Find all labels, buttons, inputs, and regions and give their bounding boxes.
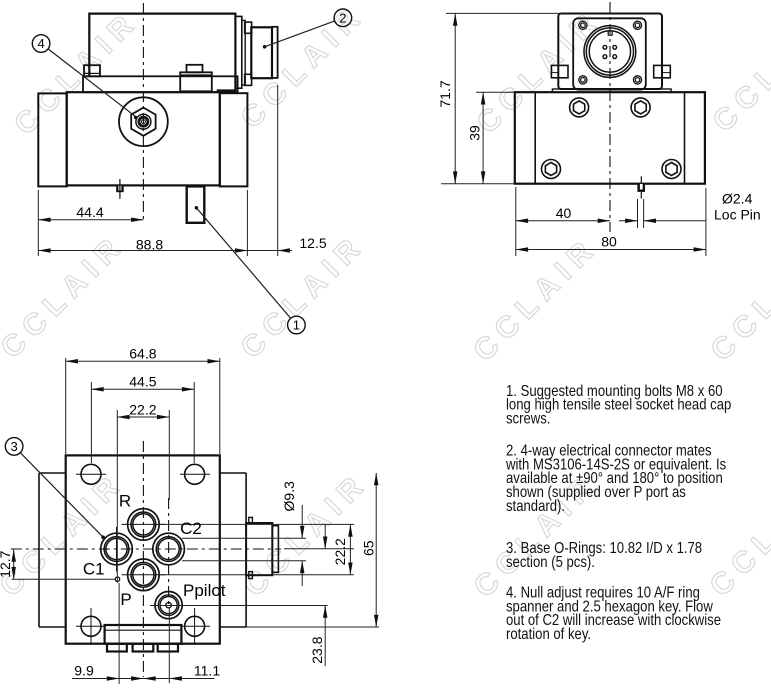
svg-text:C2: C2: [180, 519, 202, 538]
svg-text:CCLAIR: CCLAIR: [8, 4, 145, 141]
svg-text:39: 39: [467, 125, 483, 141]
svg-text:3: 3: [10, 439, 17, 454]
svg-text:12.5: 12.5: [299, 235, 326, 251]
svg-text:23.8: 23.8: [309, 636, 325, 663]
svg-text:80: 80: [601, 234, 617, 250]
svg-text:22.2: 22.2: [332, 538, 348, 565]
svg-text:44.4: 44.4: [76, 204, 103, 220]
svg-text:C1: C1: [83, 560, 105, 579]
svg-text:1: 1: [293, 318, 300, 333]
svg-text:CCLAIR: CCLAIR: [471, 3, 608, 140]
svg-text:22.2: 22.2: [129, 402, 156, 418]
svg-text:Ø2.4: Ø2.4: [722, 190, 753, 206]
svg-text:rotation of key.: rotation of key.: [506, 626, 591, 643]
svg-text:64.8: 64.8: [129, 346, 156, 362]
svg-text:Ppilot: Ppilot: [183, 581, 226, 600]
svg-text:CCLAIR: CCLAIR: [467, 230, 604, 367]
svg-text:screws.: screws.: [506, 410, 550, 427]
svg-text:standard).: standard).: [506, 498, 565, 515]
svg-text:CCLAIR: CCLAIR: [707, 1, 771, 138]
svg-text:CCLAIR: CCLAIR: [0, 228, 132, 365]
svg-text:88.8: 88.8: [136, 236, 163, 252]
svg-text:4: 4: [37, 36, 44, 51]
svg-text:71.7: 71.7: [437, 80, 453, 107]
svg-text:65: 65: [361, 540, 377, 556]
svg-text:CCLAIR: CCLAIR: [705, 230, 771, 367]
svg-text:CCLAIR: CCLAIR: [238, 466, 375, 603]
svg-text:11.1: 11.1: [194, 663, 220, 679]
svg-text:section (5 pcs).: section (5 pcs).: [506, 554, 595, 571]
svg-text:12.7: 12.7: [0, 550, 13, 577]
svg-text:9.9: 9.9: [74, 663, 94, 679]
svg-text:R: R: [119, 492, 131, 511]
svg-text:Ø9.3: Ø9.3: [281, 481, 297, 512]
svg-text:P: P: [120, 590, 131, 609]
svg-text:Loc Pin: Loc Pin: [714, 207, 761, 223]
svg-text:40: 40: [556, 205, 572, 221]
svg-text:44.5: 44.5: [129, 374, 156, 390]
svg-text:2: 2: [339, 11, 346, 26]
